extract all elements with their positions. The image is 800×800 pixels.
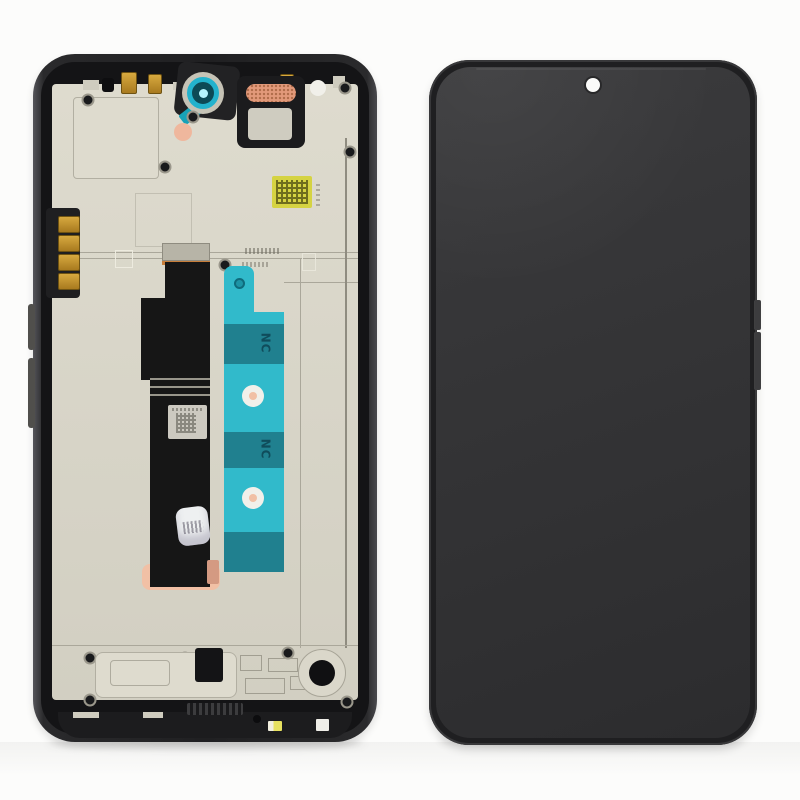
- loudspeaker-grille: [187, 703, 243, 715]
- main-flex-ribbon-mid: [141, 298, 210, 380]
- camera-lens-glint: [199, 89, 208, 98]
- adhesive-strip-liner: [224, 432, 284, 468]
- charging-port-connector: [195, 648, 223, 682]
- screw: [341, 696, 354, 709]
- antenna-contact: [148, 74, 162, 94]
- flex-stiffener-line: [150, 378, 210, 380]
- band-tab: [73, 712, 99, 718]
- proximity-sensor-pad: [174, 123, 192, 141]
- etched-outline: [135, 193, 192, 247]
- display-panel: [436, 67, 750, 738]
- bottom-box-detail: [110, 660, 170, 686]
- back-frame-assembly: NC NC: [33, 54, 377, 742]
- earpiece-window: [248, 108, 292, 140]
- speaker-hole: [309, 660, 335, 686]
- antenna-gold-pad: [58, 235, 80, 252]
- mic-hole: [253, 715, 261, 723]
- screw: [344, 146, 357, 159]
- adhesive-tab-hole: [234, 278, 245, 289]
- chip-white: [316, 719, 329, 731]
- copper-tab: [207, 560, 219, 584]
- adhesive-release-dot: [242, 385, 264, 407]
- embossed-marking: [245, 248, 279, 254]
- plate-seam: [52, 645, 358, 646]
- qr-sticker-white: [175, 505, 211, 547]
- screw: [82, 94, 95, 107]
- screw: [187, 111, 200, 124]
- screw: [84, 694, 97, 707]
- bottom-frame-band: [58, 712, 352, 738]
- product-photo: NC NC: [0, 0, 800, 800]
- antenna-gold-pad: [58, 273, 80, 290]
- adhesive-marking-nc: NC: [258, 333, 272, 354]
- power-button-front: [754, 332, 761, 390]
- earpiece-speaker-mesh: [246, 84, 296, 102]
- antenna-contact: [121, 72, 137, 94]
- power-button-back: [28, 358, 35, 428]
- screen-top-reflection: [476, 68, 706, 70]
- qr-pattern: [176, 413, 196, 433]
- punch-hole-camera: [586, 78, 600, 92]
- chip-yellow: [268, 721, 282, 731]
- lcd-flex-connector: [162, 243, 210, 261]
- top-left-shield: [73, 97, 159, 179]
- bottom-cutout: [240, 655, 262, 671]
- sticker-mark: [182, 520, 203, 534]
- etched-outline: [115, 250, 133, 268]
- flex-stiffener-line: [150, 394, 210, 396]
- plate-seam: [300, 258, 301, 648]
- microphone-part: [102, 78, 114, 92]
- flex-stiffener-line: [150, 386, 210, 388]
- label-print-marks: [316, 182, 320, 206]
- screw: [339, 82, 352, 95]
- antenna-gold-pad: [58, 254, 80, 271]
- qr-label-yellow: [272, 176, 312, 208]
- bottom-cutout: [245, 678, 285, 694]
- qr-sticker-gray: [168, 405, 207, 439]
- adhesive-strip-tab: [224, 266, 254, 316]
- plate-seam: [345, 138, 347, 648]
- volume-button-back: [28, 304, 35, 350]
- frame-tab: [83, 80, 99, 90]
- etched-outline: [302, 253, 316, 271]
- adhesive-release-dot: [242, 487, 264, 509]
- backdrop-shadow-band: [0, 742, 800, 787]
- adhesive-strip-liner: [224, 532, 284, 572]
- adhesive-marking-nc: NC: [258, 439, 272, 460]
- main-flex-ribbon-top: [165, 262, 210, 302]
- volume-button-front: [754, 300, 761, 330]
- screw: [159, 161, 172, 174]
- qr-pattern: [276, 180, 308, 204]
- antenna-gold-pad: [58, 216, 80, 233]
- screw-boss: [310, 80, 326, 96]
- adhesive-strip-liner: [224, 324, 284, 364]
- front-screen-assembly: [429, 60, 757, 745]
- band-tab: [143, 712, 163, 718]
- sticker-print-line: [172, 408, 202, 411]
- bottom-cutout: [268, 658, 298, 672]
